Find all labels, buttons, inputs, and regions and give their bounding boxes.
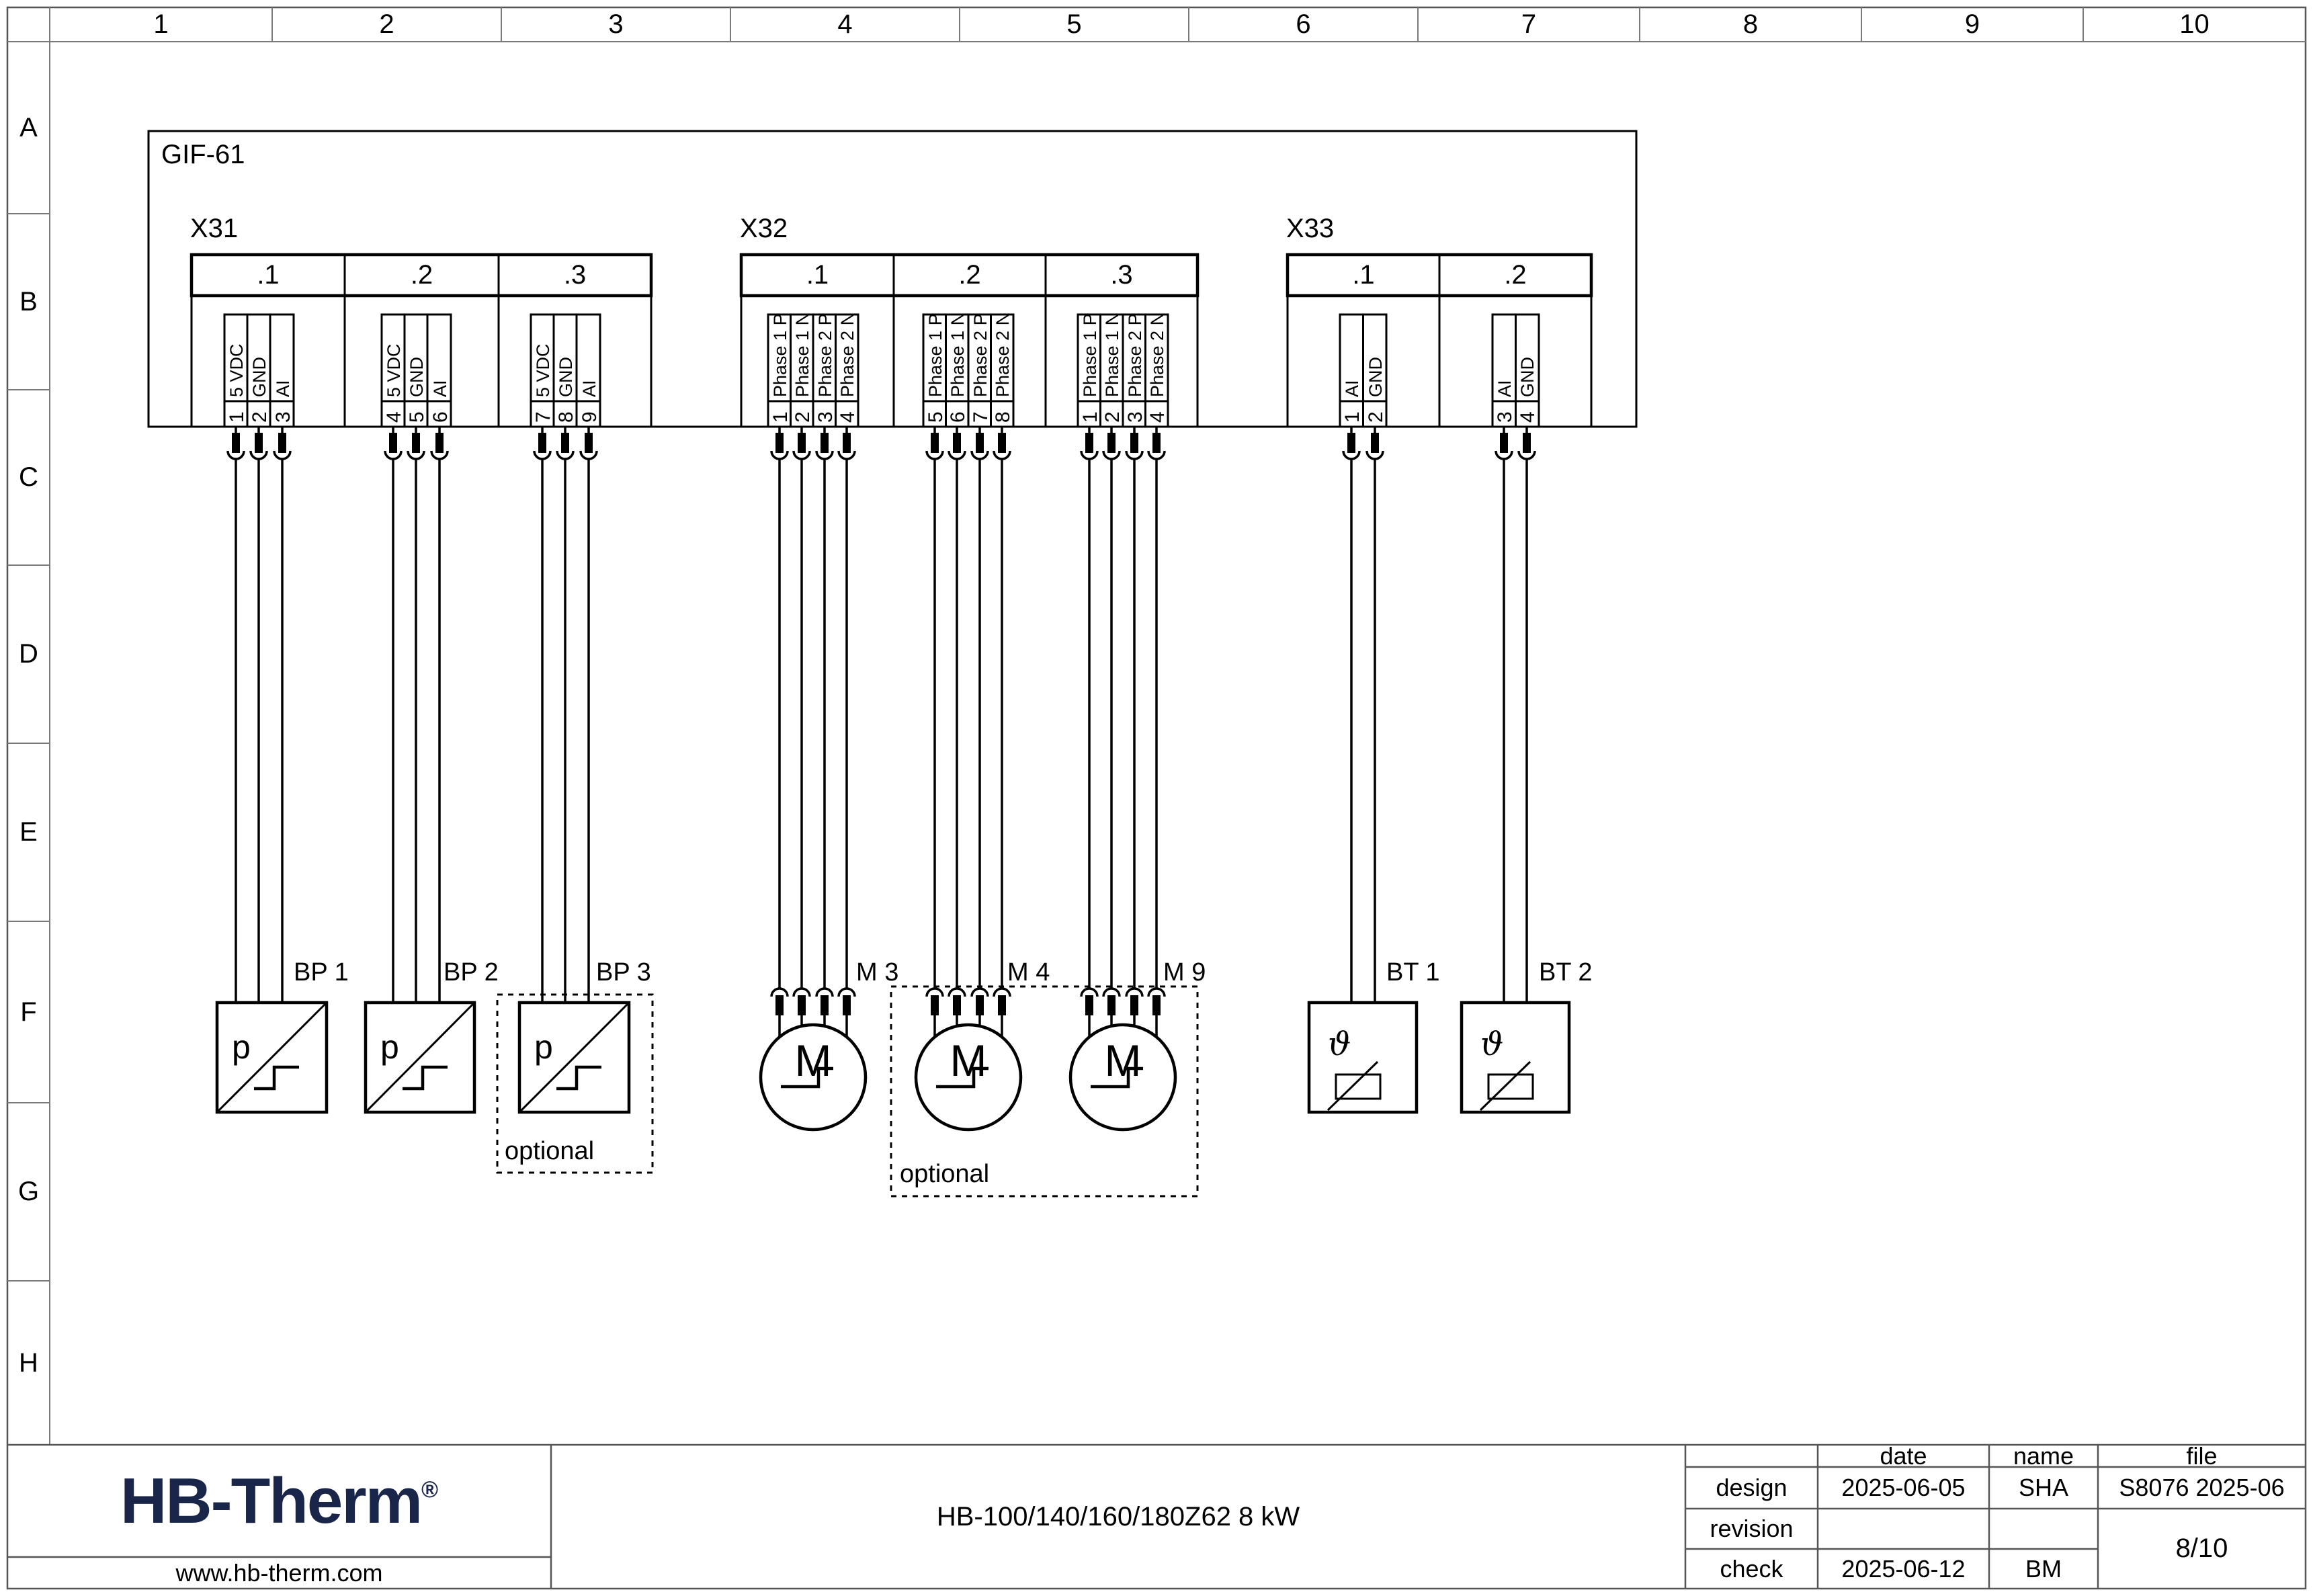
motor-symbol: M [1105, 1036, 1142, 1085]
pin-signal: AI [1342, 380, 1362, 397]
schematic-page: 5 VDC GND AI 5 VDC GND AI 5 VDC GND AI P… [0, 0, 2313, 1596]
pin-signal: Phase 2 P [815, 313, 835, 397]
pin-signal: AI [273, 380, 293, 397]
connector-group-label: .1 [1288, 255, 1439, 296]
pin-signal: Phase 1 N [1102, 312, 1122, 397]
pin-number: 3 [814, 411, 837, 423]
table-design-name: SHA [1989, 1467, 2098, 1509]
table-revision-date [1818, 1509, 1989, 1549]
ruler-row-e: E [7, 743, 50, 921]
pin-signal: Phase 2 P [970, 313, 991, 397]
motor-m3: M [761, 1025, 866, 1130]
pin-signal: Phase 1 P [925, 313, 945, 397]
ruler-row-a: A [7, 42, 50, 214]
connector-group-label: .2 [894, 255, 1046, 296]
pin-signal: Phase 2 N [837, 312, 857, 397]
temperature-sensor-bt2: ϑ [1462, 1003, 1569, 1112]
temperature-symbol: ϑ [1328, 1025, 1351, 1063]
pin-signal: GND [1517, 357, 1538, 397]
ruler-column-7: 7 [1418, 7, 1640, 42]
device-label-m9: M 9 [1163, 958, 1206, 987]
pressure-sensor-bp3: p [519, 1003, 629, 1112]
connector-group-label: .1 [741, 255, 894, 296]
pin-number: 4 [1517, 411, 1539, 423]
ruler-column-3: 3 [501, 7, 730, 42]
connector-group-label: .1 [192, 255, 345, 296]
pin-number: 5 [925, 411, 947, 423]
temperature-sensor-bt1: ϑ [1309, 1003, 1417, 1112]
pin-signal: AI [579, 380, 599, 397]
pin-signal: Phase 1 N [792, 312, 812, 397]
pin-number: 9 [579, 411, 601, 423]
pressure-symbol: p [534, 1028, 553, 1066]
registered-mark: ® [421, 1477, 438, 1503]
pin-number: 3 [1494, 411, 1516, 423]
device-label-m4: M 4 [1007, 958, 1050, 987]
pin-number: 1 [1079, 411, 1101, 423]
pin-signal: Phase 1 P [770, 313, 790, 397]
page-number: 8/10 [2098, 1509, 2306, 1589]
device-label-bt1: BT 1 [1386, 958, 1440, 987]
pin-number: 2 [1101, 411, 1124, 423]
pressure-symbol: p [232, 1028, 251, 1066]
ruler-column-4: 4 [730, 7, 960, 42]
connector-group-label: .2 [1439, 255, 1591, 296]
motor-symbol: M [950, 1036, 987, 1085]
pin-number: 1 [226, 411, 248, 423]
table-revision-name [1989, 1509, 2098, 1549]
pin-signal: Phase 2 N [993, 312, 1013, 397]
pin-signal: 5 VDC [533, 343, 553, 397]
pin-number: 8 [555, 411, 577, 423]
pin-number: 6 [429, 411, 452, 423]
pin-number: 2 [249, 411, 271, 423]
connector-x32-label: X32 [740, 214, 788, 244]
company-logo-text: HB-Therm [120, 1465, 421, 1537]
device-label-bp2: BP 2 [444, 958, 499, 987]
table-header-file: file [2098, 1445, 2306, 1467]
pressure-sensor-bp1: p [217, 1003, 327, 1112]
ruler-column-9: 9 [1861, 7, 2083, 42]
pressure-sensor-bp2: p [366, 1003, 474, 1112]
pin-signal: Phase 2 N [1147, 312, 1167, 397]
device-label-bp3: BP 3 [596, 958, 651, 987]
ruler-column-2: 2 [272, 7, 501, 42]
pin-number: 8 [992, 411, 1014, 423]
pin-signal: Phase 1 N [948, 312, 968, 397]
pin-signal: GND [556, 357, 576, 397]
table-row-design-label: design [1685, 1467, 1818, 1509]
pin-signal: GND [1365, 357, 1386, 397]
company-website: www.hb-therm.com [7, 1557, 551, 1589]
temperature-symbol: ϑ [1480, 1025, 1503, 1063]
pin-signal: AI [1495, 380, 1515, 397]
unit-label: GIF-61 [161, 140, 245, 170]
motor-m9: M [1070, 1025, 1175, 1130]
pin-signal: Phase 1 P [1080, 313, 1100, 397]
device-label-m3: M 3 [856, 958, 898, 987]
pin-number: 4 [383, 411, 405, 423]
ruler-row-g: G [7, 1103, 50, 1281]
pin-number: 4 [1146, 411, 1169, 423]
ruler-column-10: 10 [2083, 7, 2306, 42]
motor-symbol: M [795, 1036, 832, 1085]
optional-label-motors: optional [900, 1160, 989, 1189]
connector-group-label: .3 [1046, 255, 1197, 296]
pin-number: 6 [947, 411, 969, 423]
pin-signal: 5 VDC [226, 343, 247, 397]
ruler-column-8: 8 [1640, 7, 1861, 42]
unit-plug-symbols [228, 427, 1535, 459]
ruler-row-b: B [7, 214, 50, 390]
ruler-column-5: 5 [960, 7, 1189, 42]
connector-group-label: .2 [345, 255, 499, 296]
table-check-name: BM [1989, 1549, 2098, 1589]
device-label-bp1: BP 1 [294, 958, 349, 987]
ruler-row-d: D [7, 565, 50, 743]
wires [236, 459, 1527, 1003]
pin-number: 7 [532, 411, 554, 423]
ruler-row-c: C [7, 390, 50, 565]
table-header-date: date [1818, 1445, 1989, 1467]
table-design-date: 2025-06-05 [1818, 1467, 1989, 1509]
ruler-column-6: 6 [1189, 7, 1418, 42]
pin-number: 2 [1365, 411, 1387, 423]
pin-signal: AI [430, 380, 450, 397]
table-row-check-label: check [1685, 1549, 1818, 1589]
table-header-name: name [1989, 1445, 2098, 1467]
drawing-title: HB-100/140/160/180Z62 8 kW [551, 1445, 1685, 1589]
table-check-date: 2025-06-12 [1818, 1549, 1989, 1589]
pin-numbers: 1 2 3 4 5 6 7 8 9 1 2 3 4 5 6 7 8 1 2 3 … [226, 411, 1539, 423]
ruler-row-f: F [7, 921, 50, 1103]
pin-signal: GND [249, 357, 269, 397]
pin-number: 4 [837, 411, 859, 423]
pin-number: 5 [406, 411, 428, 423]
company-logo: HB-Therm® [7, 1445, 551, 1557]
motor-m4: M [916, 1025, 1021, 1130]
pressure-symbol: p [380, 1028, 399, 1066]
pin-number: 1 [1341, 411, 1363, 423]
pin-number: 7 [970, 411, 992, 423]
device-label-bt2: BT 2 [1539, 958, 1593, 987]
connector-x31-label: X31 [190, 214, 238, 244]
pin-number: 3 [1124, 411, 1146, 423]
pin-signal: GND [407, 357, 427, 397]
optional-label-bp3: optional [505, 1137, 594, 1166]
pin-signal: 5 VDC [384, 343, 404, 397]
connector-x33-label: X33 [1286, 214, 1334, 244]
pin-number: 1 [769, 411, 792, 423]
schematic-canvas: 5 VDC GND AI 5 VDC GND AI 5 VDC GND AI P… [0, 0, 2313, 1596]
pin-signal: Phase 2 P [1125, 313, 1145, 397]
connector-group-label: .3 [499, 255, 651, 296]
ruler-column-1: 1 [50, 7, 272, 42]
table-design-file: S8076 2025-06 [2098, 1467, 2306, 1509]
ruler-row-h: H [7, 1281, 50, 1445]
pin-number: 3 [272, 411, 294, 423]
pin-number: 2 [792, 411, 814, 423]
table-row-revision-label: revision [1685, 1509, 1818, 1549]
